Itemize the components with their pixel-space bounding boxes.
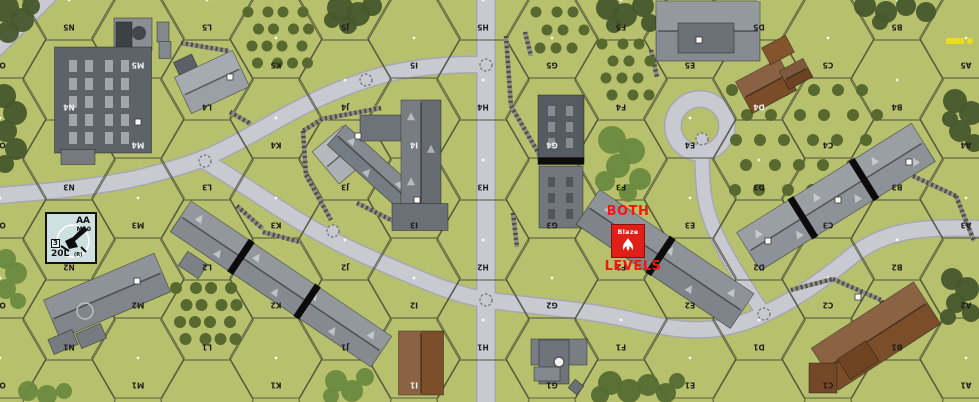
svg-text:M4: M4: [132, 140, 145, 149]
svg-text:B4: B4: [892, 102, 903, 111]
building-factory-chimney: [116, 22, 132, 48]
svg-text:G1: G1: [546, 380, 557, 389]
svg-text:M5: M5: [132, 60, 145, 69]
svg-text:I5: I5: [410, 60, 418, 69]
svg-text:M2: M2: [132, 300, 145, 309]
svg-text:D1: D1: [753, 342, 764, 351]
svg-text:O2: O2: [0, 300, 6, 309]
svg-text:I1: I1: [410, 380, 418, 389]
svg-text:O4: O4: [0, 140, 6, 149]
svg-text:L1: L1: [202, 342, 212, 351]
svg-text:D5: D5: [753, 22, 764, 31]
building-house-I1: [399, 331, 444, 395]
building-lodge-G1-annex: [534, 367, 560, 381]
svg-text:N4: N4: [63, 102, 75, 111]
aa-class-label: AA: [76, 217, 90, 226]
svg-text:L2: L2: [202, 262, 212, 271]
svg-text:J4: J4: [341, 102, 350, 111]
svg-text:H3: H3: [477, 182, 489, 191]
svg-text:B5: B5: [892, 22, 903, 31]
svg-text:F3: F3: [616, 182, 626, 191]
svg-text:A1: A1: [960, 380, 971, 389]
svg-text:G2: G2: [546, 300, 557, 309]
svg-text:F5: F5: [616, 22, 626, 31]
blaze-counter[interactable]: Blaze: [611, 224, 645, 258]
svg-text:I2: I2: [410, 300, 418, 309]
svg-text:F1: F1: [616, 342, 626, 351]
svg-text:K3: K3: [270, 220, 281, 229]
svg-text:D3: D3: [753, 182, 764, 191]
svg-text:A4: A4: [960, 140, 971, 149]
svg-text:H4: H4: [477, 102, 489, 111]
hex-map[interactable]: O5O4O3O2O1N5N4N3N2N1M5M4M3M2M1L5L4L3L2L1…: [0, 0, 979, 402]
aa-gun-counter[interactable]: AA M10 3 20L (R): [45, 212, 97, 264]
aa-rof-badge: 3: [51, 239, 60, 248]
svg-text:E1: E1: [685, 380, 695, 389]
svg-text:I4: I4: [410, 140, 418, 149]
svg-text:L3: L3: [202, 182, 212, 191]
building-monastery-base: [392, 204, 448, 231]
aa-suffix-label: (R): [74, 253, 82, 258]
svg-text:D2: D2: [753, 262, 764, 271]
wargame-map-view: O5O4O3O2O1N5N4N3N2N1M5M4M3M2M1L5L4L3L2L1…: [0, 0, 979, 402]
svg-text:G3: G3: [546, 220, 557, 229]
svg-text:L4: L4: [202, 102, 212, 111]
annotation-both: BOTH: [603, 204, 653, 219]
svg-text:G5: G5: [546, 60, 557, 69]
svg-text:G4: G4: [546, 140, 557, 149]
svg-text:E4: E4: [685, 140, 695, 149]
svg-text:C3: C3: [823, 220, 834, 229]
svg-text:B3: B3: [892, 182, 903, 191]
svg-text:J2: J2: [341, 262, 350, 271]
svg-text:K1: K1: [270, 380, 281, 389]
svg-text:H1: H1: [477, 342, 489, 351]
building-factory-out1: [157, 22, 169, 42]
building-mansion-E5-core: [678, 23, 734, 53]
svg-text:B2: B2: [892, 262, 903, 271]
annotation-levels: LEVELS: [600, 259, 666, 274]
svg-text:K4: K4: [270, 140, 281, 149]
svg-text:O5: O5: [0, 60, 6, 69]
wreck-dot-icon: [967, 38, 973, 44]
building-factory-south: [61, 150, 95, 165]
building-church-band: [538, 158, 584, 165]
wreck-bar-icon: [946, 38, 964, 44]
aa-caliber-label: 20L: [51, 250, 69, 259]
building-church-G3: [539, 166, 583, 228]
svg-text:J3: J3: [341, 182, 350, 191]
svg-text:L5: L5: [202, 22, 212, 31]
svg-text:A5: A5: [960, 60, 971, 69]
svg-text:H2: H2: [477, 262, 489, 271]
svg-text:D4: D4: [753, 102, 764, 111]
svg-text:F4: F4: [616, 102, 626, 111]
svg-text:B1: B1: [892, 342, 903, 351]
building-factory-out2: [159, 42, 171, 59]
flame-icon: [616, 236, 640, 254]
svg-text:E3: E3: [685, 220, 695, 229]
svg-text:O1: O1: [0, 380, 6, 389]
svg-text:J5: J5: [341, 22, 350, 31]
building-church-G4: [538, 95, 584, 161]
svg-text:E5: E5: [685, 60, 695, 69]
svg-text:N1: N1: [63, 342, 75, 351]
svg-text:M1: M1: [132, 380, 145, 389]
svg-text:I3: I3: [410, 220, 418, 229]
svg-text:C4: C4: [823, 140, 834, 149]
svg-text:C1: C1: [823, 380, 834, 389]
svg-text:E2: E2: [685, 300, 695, 309]
svg-text:H5: H5: [477, 22, 489, 31]
svg-text:C5: C5: [823, 60, 834, 69]
svg-text:N3: N3: [63, 182, 75, 191]
svg-text:A3: A3: [960, 220, 971, 229]
svg-text:J1: J1: [341, 342, 350, 351]
wreck-marker[interactable]: [946, 36, 976, 46]
aa-m-number: M10: [77, 227, 91, 233]
svg-text:C2: C2: [823, 300, 834, 309]
svg-text:K5: K5: [270, 60, 281, 69]
svg-text:A2: A2: [960, 300, 971, 309]
blaze-label: Blaze: [612, 228, 644, 236]
svg-text:M3: M3: [132, 220, 145, 229]
svg-text:O3: O3: [0, 220, 6, 229]
svg-text:N5: N5: [63, 22, 75, 31]
svg-text:K2: K2: [270, 300, 281, 309]
